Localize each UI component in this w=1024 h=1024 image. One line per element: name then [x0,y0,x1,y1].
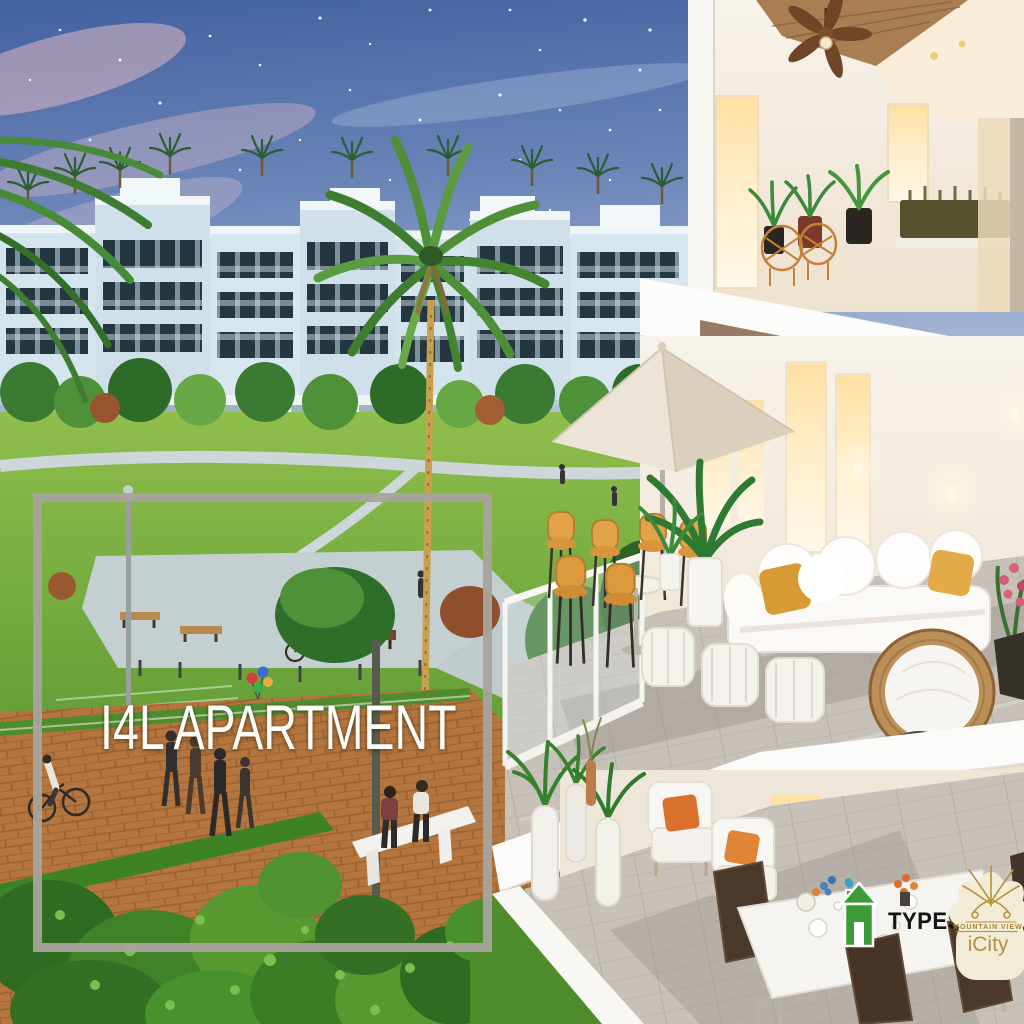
bar-chair [554,556,588,666]
lotus-flower-icon [944,842,1024,992]
glowing-window [786,362,826,552]
orange-pillow [662,794,700,832]
top-floor [688,0,1024,312]
mustard-pillow [927,549,976,598]
orange-pillow [723,829,760,866]
house-icon [840,874,878,952]
glowing-window [888,104,928,202]
brand-name: MOUNTAIN VIEW [948,922,1024,931]
brand-product: iCity [944,933,1024,957]
gold-divider [956,931,1018,932]
render-image: I4L APARTMENT TYPES MOUNTAIN VIEW iCity [0,0,1024,1024]
page-title: I4L APARTMENT [100,692,457,764]
